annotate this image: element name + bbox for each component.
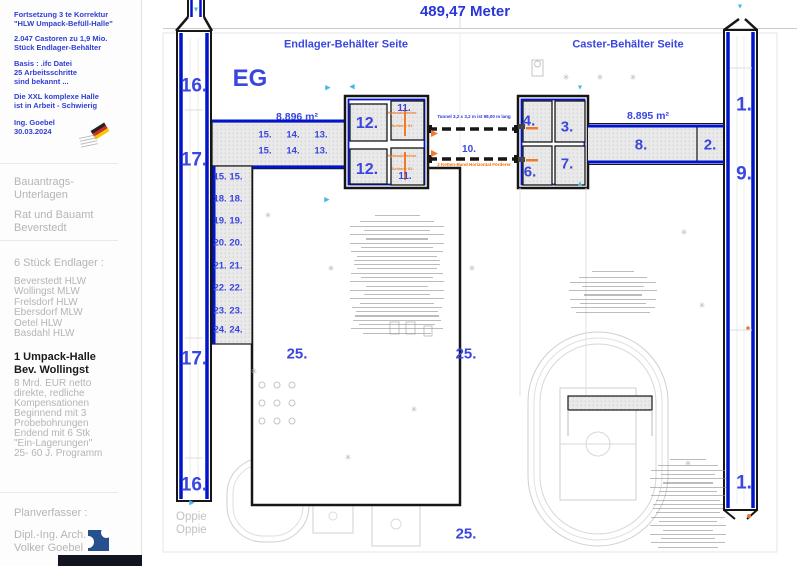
microtext-line <box>651 470 726 471</box>
microtext-line <box>354 260 440 261</box>
running-track <box>528 332 668 546</box>
rail-1-annotation: Hydraulikheber→Schiene 01 <box>381 110 423 129</box>
tunnel-annotation: Tunnel 3,2 x 3,2 m ist 98,00 m lang <box>428 114 520 119</box>
microtext-line <box>351 251 442 252</box>
microtext-line <box>650 534 726 535</box>
revision-note: Fortsetzung 3 te Korrektur"HLW Umpack-Be… <box>14 10 113 28</box>
dimension-marker-icon: ▼ <box>737 4 744 11</box>
tree-icon: ✳ <box>563 74 570 82</box>
microtext-line <box>663 530 713 531</box>
microtext-line <box>592 271 633 272</box>
room-label: EG <box>233 67 268 91</box>
oppie-label: OppieOppie <box>176 511 207 537</box>
room-label: 22. 22. <box>213 283 242 293</box>
conveyor-annotation: 2 Ketten-Band Horizontal Förderer <box>424 162 524 167</box>
microtext-line <box>361 247 432 248</box>
room-label: 11. <box>398 172 411 182</box>
tree-icon: ✳ <box>411 406 418 414</box>
room-label: 4. <box>523 114 536 129</box>
room-label: 25. <box>456 347 477 362</box>
room-label: 8. <box>635 138 648 153</box>
microtext-line <box>658 465 718 466</box>
planverfasser-label: Planverfasser : <box>14 507 87 520</box>
tree-icon: ✳ <box>597 74 604 82</box>
room-label: 14. <box>286 130 299 140</box>
microtext-line <box>360 303 435 304</box>
tree-icon: ✳ <box>251 368 258 376</box>
worksteps-legend-microtext <box>347 212 447 334</box>
blueprint-canvas: Fortsetzung 3 te Korrektur"HLW Umpack-Be… <box>0 0 800 566</box>
room-label: 3. <box>561 120 574 135</box>
microtext-line <box>651 495 724 496</box>
microtext-line <box>366 238 429 239</box>
microtext-line <box>354 264 440 265</box>
room-label: 20. 20. <box>213 238 242 248</box>
tree-icon: ✳ <box>328 265 335 273</box>
room-label: 12. <box>356 162 378 178</box>
bauantrag-label: Bauantrags-Unterlagen <box>14 176 74 202</box>
microtext-line <box>350 234 445 235</box>
microtext-line <box>580 303 646 304</box>
rail-2-annotation: Hydraulikheber→Schiene 02 <box>381 153 423 172</box>
room-label: 13. <box>314 130 327 140</box>
dimension-marker-icon: ▶ <box>189 500 194 507</box>
status-note: Die XXL komplexe Halleist in Arbeit - Sc… <box>14 92 99 110</box>
room-label: 12. <box>356 116 378 132</box>
room-label: Caster-Behälter Seite <box>572 40 683 51</box>
room-label: Endlager-Behälter Seite <box>284 40 408 51</box>
endlager-list: Beverstedt HLWWollingst MLWFrelsdorf HLW… <box>14 277 86 339</box>
room-label: 1. <box>736 474 752 493</box>
microtext-line <box>650 525 725 526</box>
microtext-line <box>661 474 714 475</box>
microtext-line <box>658 547 718 548</box>
note-microtext <box>567 268 659 313</box>
microtext-line <box>350 281 444 282</box>
microtext-line <box>653 504 722 505</box>
tree-icon: ✳ <box>630 74 637 82</box>
bauamt-label: Rat und BauamtBeverstedt <box>14 209 94 235</box>
tree-icon: ✳ <box>681 229 688 237</box>
room-label: 6. <box>524 165 537 180</box>
microtext-line <box>656 512 720 513</box>
overall-length-dimension: 489,47 Meter <box>390 3 540 20</box>
microtext-line <box>651 517 724 518</box>
dimension-marker-icon: ▶ <box>325 85 330 92</box>
microtext-line <box>576 312 649 313</box>
room-label: 24. 24. <box>213 325 242 335</box>
dimension-marker-icon: ▼ <box>193 7 200 14</box>
microtext-line <box>360 221 435 222</box>
room-label: 16. <box>181 476 207 495</box>
microtext-line <box>364 294 430 295</box>
microtext-line <box>570 282 656 283</box>
room-label: 25. <box>456 527 477 542</box>
endlager-heading: 6 Stück Endlager : <box>14 257 104 270</box>
microtext-line <box>350 226 443 227</box>
microtext-line <box>571 307 655 308</box>
tree-icon: ✳ <box>699 302 706 310</box>
umpack-halle-label: 1 Umpack-HalleBev. Wollingst <box>14 351 96 377</box>
room-label: 19. 19. <box>213 216 242 226</box>
dimension-marker-icon: ▶ <box>324 197 329 204</box>
room-label: 2. <box>704 138 717 153</box>
microtext-line <box>364 230 430 231</box>
microtext-line <box>357 268 437 269</box>
room-label: 16. <box>181 77 207 96</box>
room-label: 10. <box>462 145 476 155</box>
architect-logo <box>88 530 109 551</box>
kompensation-note: 8 Mrd. EUR nettodirekte, redlicheKompens… <box>14 379 102 459</box>
microtext-line <box>359 324 435 325</box>
room-label: 15. 15. <box>213 172 242 182</box>
room-label: 17. <box>181 151 207 170</box>
microtext-line <box>570 299 657 300</box>
microtext-line <box>653 508 722 509</box>
microtext-line <box>356 311 439 312</box>
microtext-line <box>659 521 716 522</box>
room-label: 18. 18. <box>213 194 242 204</box>
room-label: 8.895 m² <box>627 111 669 122</box>
microtext-line <box>651 542 726 543</box>
microtext-line <box>659 491 716 492</box>
architect-name: Dipl.-Ing. Arch.Volker Goebel <box>14 529 86 555</box>
microtext-line <box>584 294 642 295</box>
microtext-line <box>350 243 444 244</box>
microtext-line <box>350 298 443 299</box>
tree-icon: ✳ <box>265 212 272 220</box>
author-date-note: Ing. Goebel30.03.2024 <box>14 118 55 136</box>
microtext-line <box>582 286 643 287</box>
room-label: 13. <box>314 146 327 156</box>
microtext-line <box>357 256 437 257</box>
microtext-line <box>351 273 442 274</box>
microtext-line <box>353 320 442 321</box>
room-label: 9. <box>736 165 752 184</box>
microtext-line <box>352 307 441 308</box>
divider <box>0 492 118 493</box>
microtext-line <box>650 478 726 479</box>
divider <box>0 240 118 241</box>
stamp-scribble <box>79 134 98 147</box>
microtext-line <box>375 215 420 216</box>
room-label: 25. <box>287 347 308 362</box>
microtext-line <box>670 459 706 460</box>
room-label: 17. <box>181 350 207 369</box>
title-block-sidebar: Fortsetzung 3 te Korrektur"HLW Umpack-Be… <box>0 0 142 566</box>
legend-microtext <box>648 456 728 548</box>
room-label: 1. <box>736 96 752 115</box>
microtext-line <box>351 328 444 329</box>
dimension-marker-icon: ◀ <box>349 84 354 91</box>
dimension-marker-icon: ▲ <box>577 181 584 188</box>
tree-icon: ✳ <box>469 265 476 273</box>
bottom-dark-bar <box>58 555 142 566</box>
tree-icon: ✳ <box>345 454 352 462</box>
room-label: 14. <box>286 146 299 156</box>
castor-note: 2.047 Castoren zu 1,9 Mio.Stück Endlager… <box>14 34 107 52</box>
microtext-line <box>350 290 445 291</box>
microtext-line <box>650 487 725 488</box>
room-label: 21. 21. <box>213 261 242 271</box>
microtext-line <box>366 286 429 287</box>
dimension-marker-icon: ▼ <box>577 85 584 92</box>
room-label: 15. <box>258 130 271 140</box>
room-label: 7. <box>561 157 574 172</box>
microtext-line <box>569 290 656 291</box>
microtext-line <box>656 500 720 501</box>
microtext-line <box>363 333 431 334</box>
basis-note: Basis : .ifc Datei25 Arbeitsschrittesind… <box>14 59 77 86</box>
room-label: 23. 23. <box>213 306 242 316</box>
microtext-line <box>361 277 432 278</box>
microtext-line <box>579 277 648 278</box>
microtext-line <box>661 538 714 539</box>
divider <box>0 163 118 164</box>
room-label: 15. <box>258 146 271 156</box>
microtext-line <box>355 315 439 316</box>
microtext-line <box>663 482 713 483</box>
room-label: 8.896 m² <box>276 112 318 123</box>
band-rooms-13-15 <box>212 121 345 167</box>
